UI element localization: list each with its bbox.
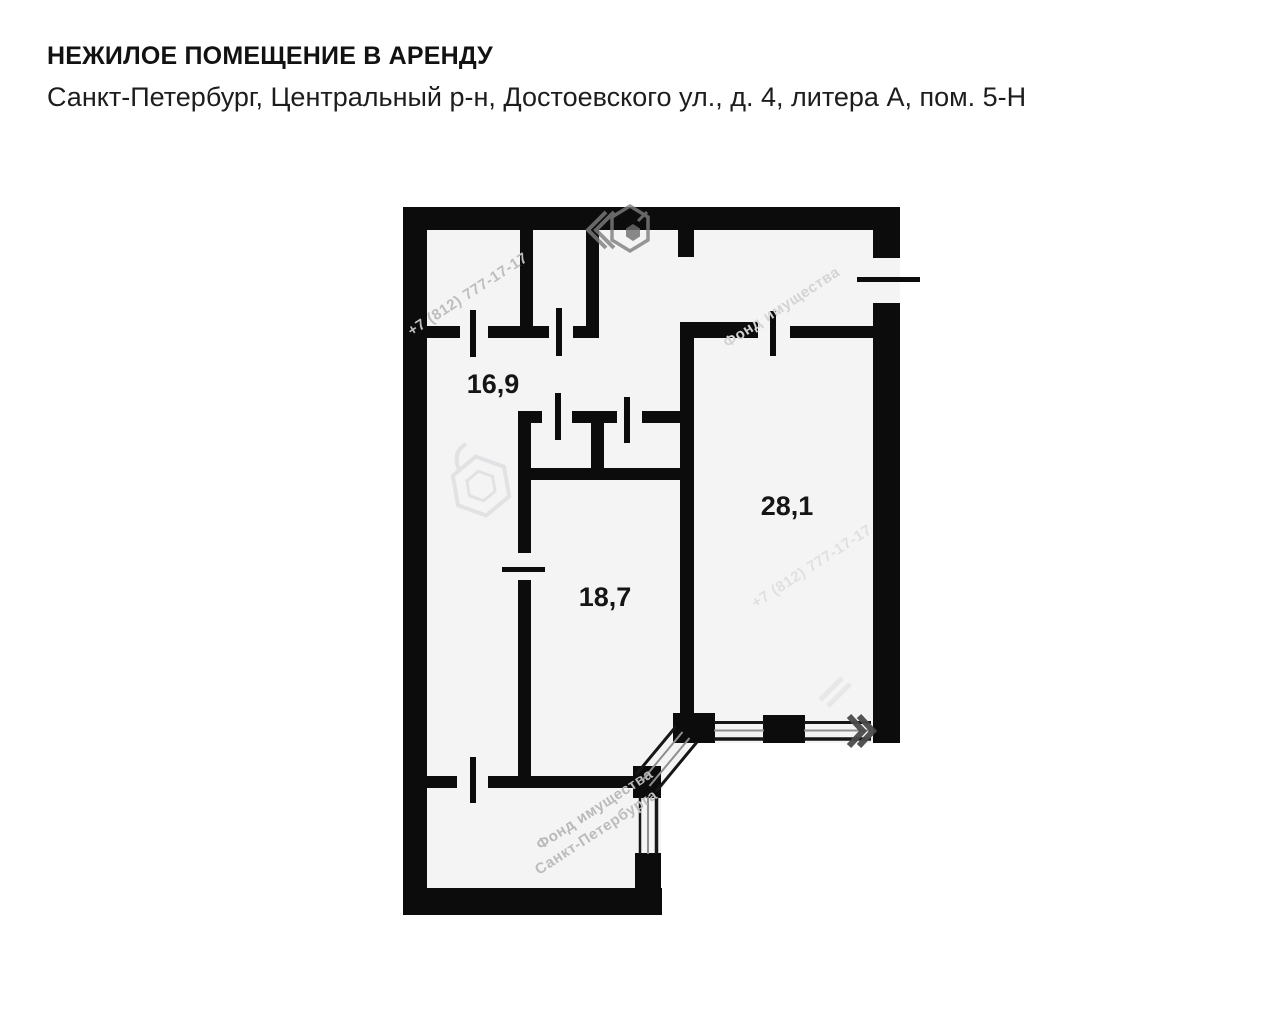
floor-plan-page: НЕЖИЛОЕ ПОМЕЩЕНИЕ В АРЕНДУ Санкт-Петербу…: [0, 0, 1280, 1033]
floor-plan-drawing: [0, 0, 1280, 1033]
room-area-label-18-7: 18,7: [560, 582, 650, 613]
room-area-label-28-1: 28,1: [742, 491, 832, 522]
entrance-door-line: [857, 277, 920, 282]
room-area-label-16-9: 16,9: [448, 369, 538, 400]
